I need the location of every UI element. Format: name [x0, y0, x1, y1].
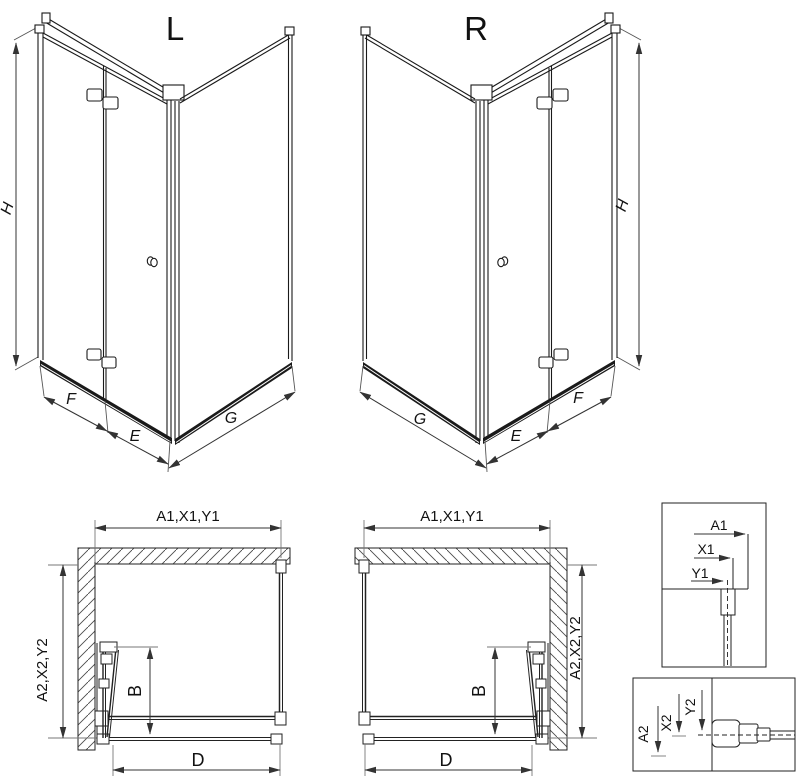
- dim-label-side-panel-right: G: [414, 411, 426, 428]
- dim-label-door-ext-right: E: [511, 428, 522, 445]
- dim-label-door-fold-plan-left: B: [125, 685, 145, 697]
- iso-view-left: [14, 13, 295, 472]
- dim-label-door-ext-left: E: [130, 428, 141, 445]
- detail-label-a2: A2: [635, 725, 651, 742]
- detail-label-x2: X2: [658, 714, 674, 731]
- dim-label-door-left: F: [66, 391, 77, 408]
- drawing-svg: L H F E G R H F E G A1,X1,Y1 A2,X2,Y2 B …: [0, 0, 800, 784]
- plan-view-right: [355, 520, 597, 776]
- dim-label-height-left: H: [0, 200, 18, 217]
- detail-label-y1: Y1: [691, 565, 708, 581]
- detail-label-x1: X1: [697, 541, 714, 557]
- dim-label-opening-plan-left: D: [192, 750, 205, 770]
- shower-enclosure-technical-drawing: L H F E G R H F E G A1,X1,Y1 A2,X2,Y2 B …: [0, 0, 800, 784]
- dim-label-width-plan-left: A1,X1,Y1: [156, 508, 219, 525]
- detail-label-y2: Y2: [682, 698, 698, 715]
- dim-label-height-right: H: [613, 197, 633, 214]
- plan-view-left: [48, 520, 290, 776]
- detail-label-a1: A1: [710, 517, 727, 533]
- dim-label-depth-plan-right: A2,X2,Y2: [567, 616, 584, 679]
- dim-label-depth-plan-left: A2,X2,Y2: [34, 638, 51, 701]
- variant-label-right: R: [464, 10, 488, 47]
- dim-label-door-right: F: [573, 390, 584, 407]
- dim-label-door-fold-plan-right: B: [469, 685, 489, 697]
- iso-view-right: [360, 13, 641, 472]
- dim-label-opening-plan-right: D: [440, 750, 453, 770]
- variant-label-left: L: [166, 10, 184, 47]
- dim-label-side-panel-left: G: [225, 410, 237, 427]
- dim-label-width-plan-right: A1,X1,Y1: [420, 508, 483, 525]
